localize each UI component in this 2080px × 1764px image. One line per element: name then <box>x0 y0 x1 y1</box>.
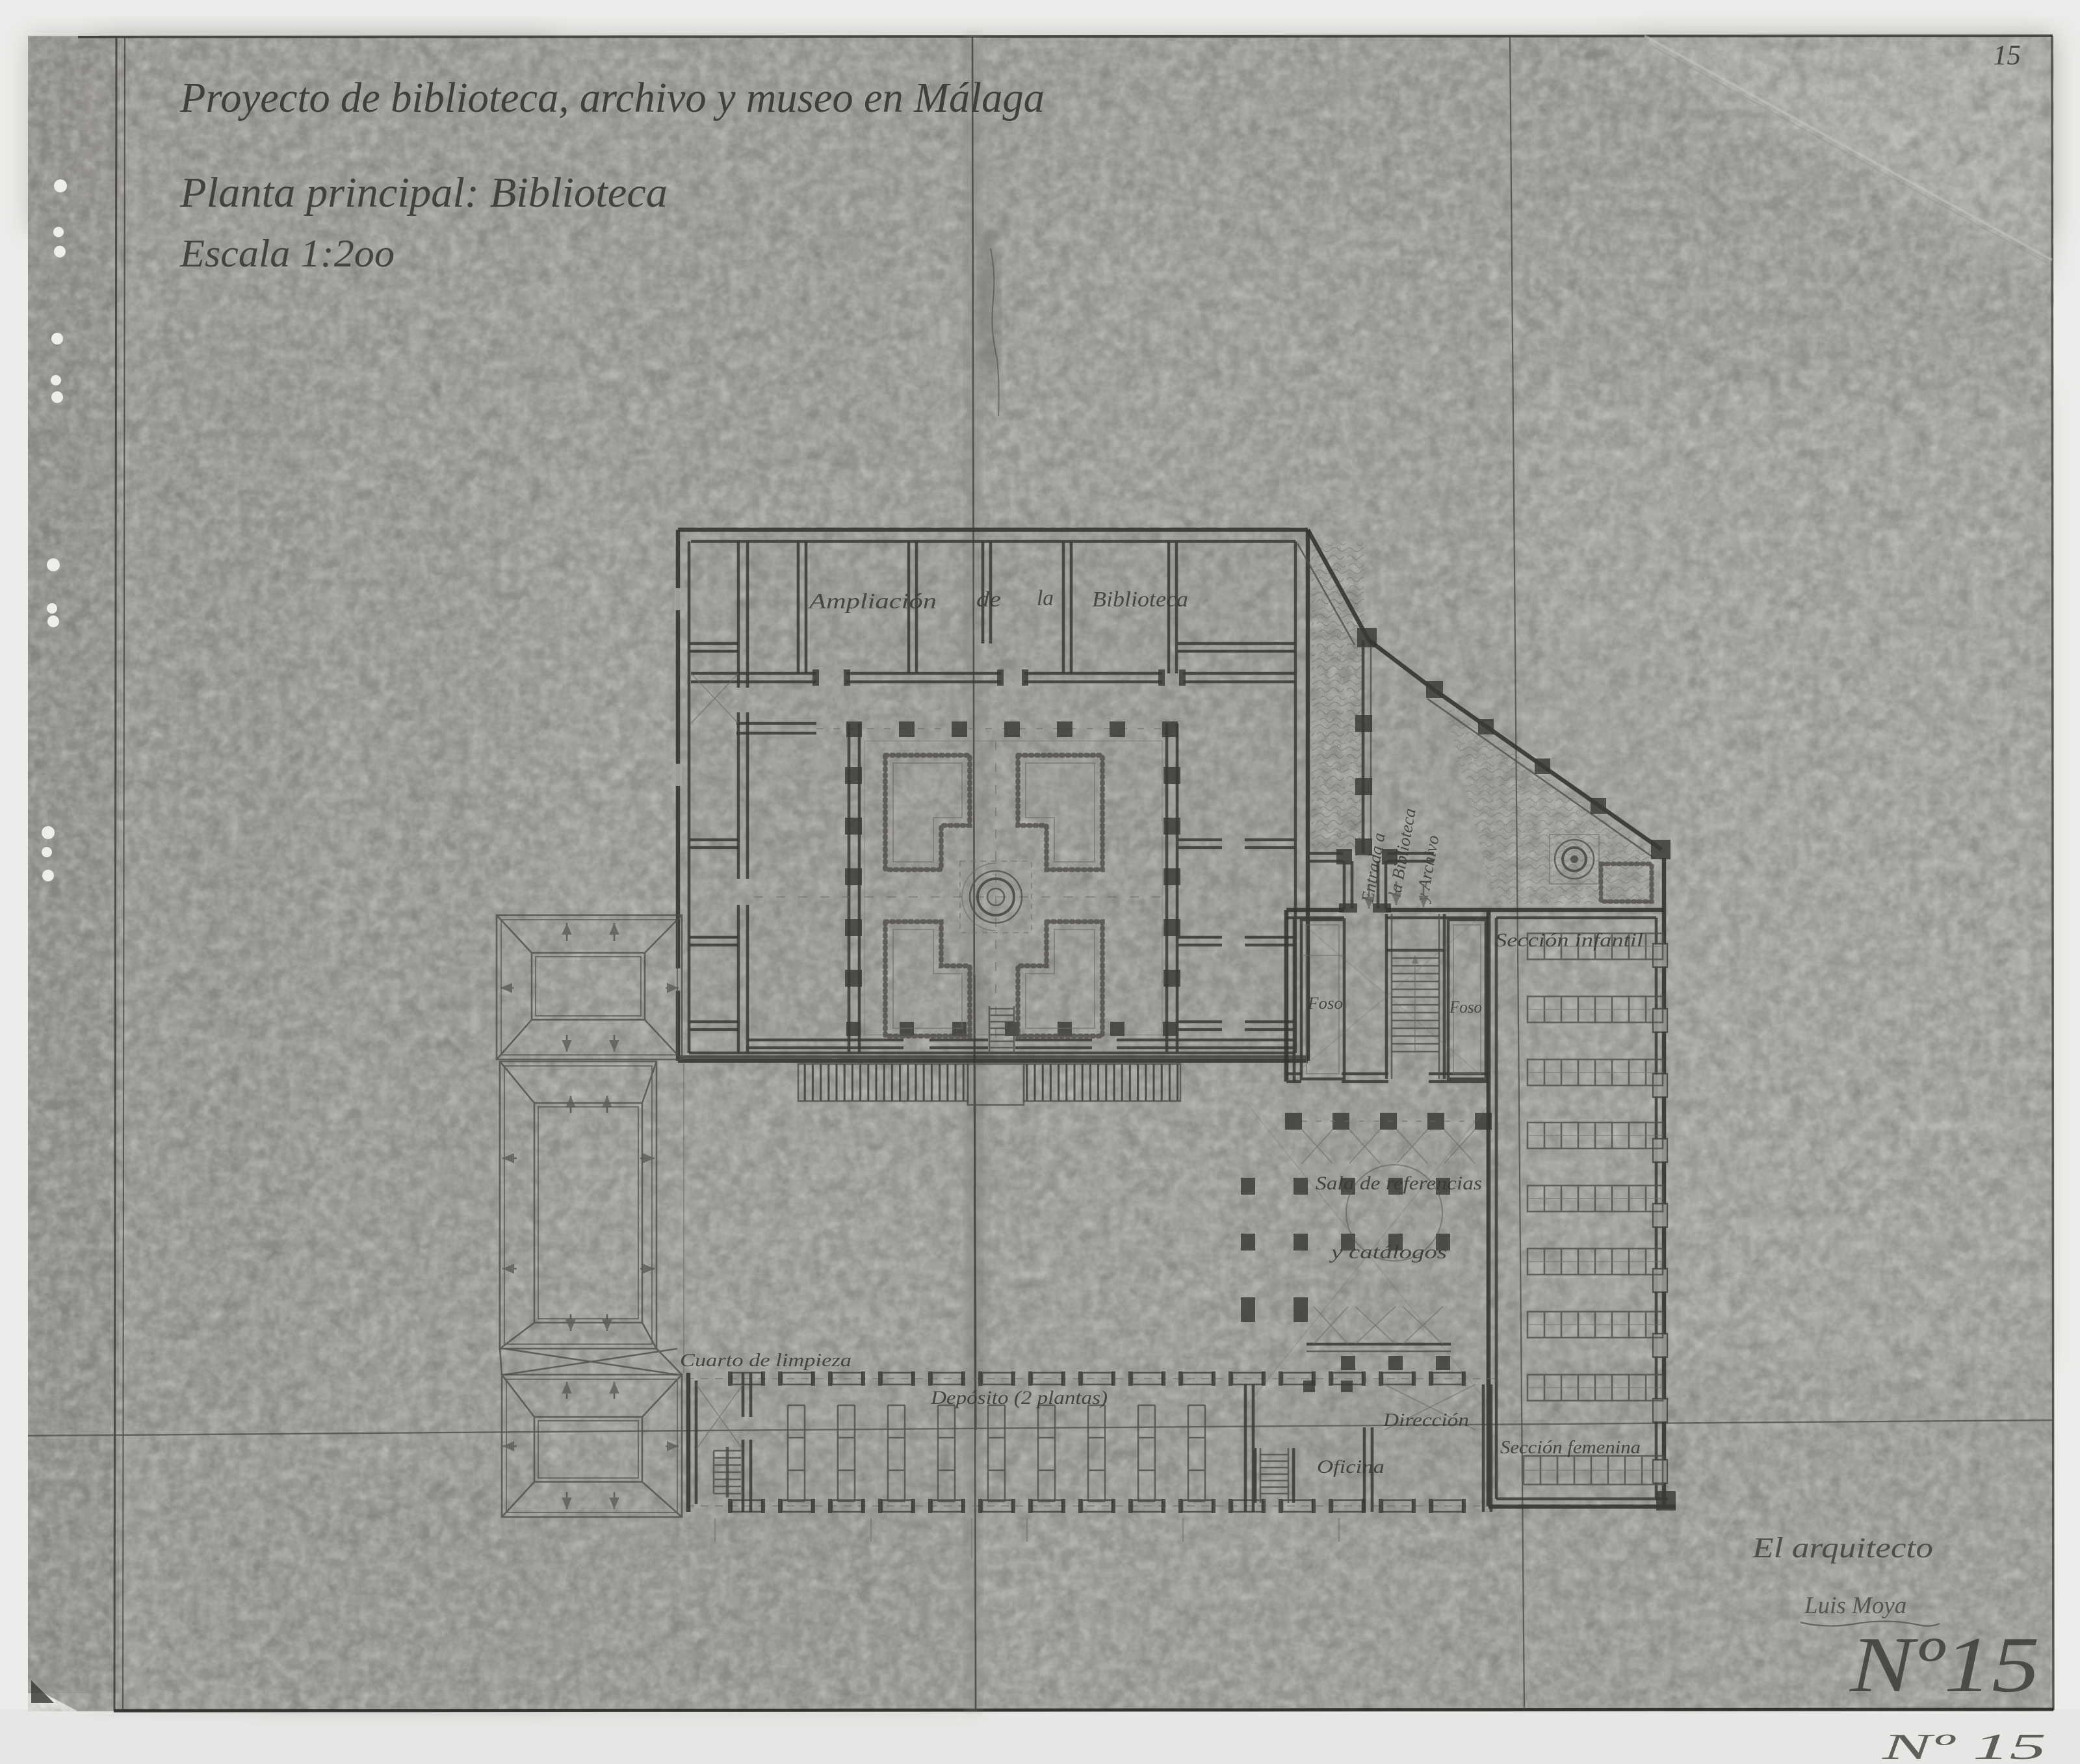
svg-text:Luis Moya: Luis Moya <box>1804 1592 1906 1619</box>
svg-text:Depósito (2 plantas): Depósito (2 plantas) <box>930 1387 1108 1408</box>
svg-text:Escala 1:2oo: Escala 1:2oo <box>179 232 395 275</box>
svg-text:Ampliación: Ampliación <box>807 590 937 614</box>
svg-text:Foso: Foso <box>1449 998 1482 1017</box>
svg-text:15: 15 <box>1993 40 2021 71</box>
svg-text:Planta principal: Biblioteca: Planta principal: Biblioteca <box>179 169 668 216</box>
svg-text:Sección infantil: Sección infantil <box>1495 929 1643 951</box>
svg-text:y catálogos: y catálogos <box>1329 1241 1447 1263</box>
svg-text:Proyecto de biblioteca, archiv: Proyecto de biblioteca, archivo y museo … <box>179 74 1045 122</box>
svg-text:Foso: Foso <box>1307 994 1343 1013</box>
svg-text:Sala de referencias: Sala de referencias <box>1316 1173 1482 1194</box>
svg-text:El arquitecto: El arquitecto <box>1752 1532 1933 1564</box>
svg-text:Dirección: Dirección <box>1383 1410 1469 1431</box>
svg-text:Sección femenina: Sección femenina <box>1500 1438 1641 1458</box>
svg-text:Biblioteca: Biblioteca <box>1092 588 1188 612</box>
svg-text:Cuarto de limpieza: Cuarto de limpieza <box>680 1351 851 1371</box>
svg-text:Oficina: Oficina <box>1317 1457 1384 1477</box>
svg-text:de: de <box>976 588 1001 612</box>
svg-text:Nº 15: Nº 15 <box>1881 1727 2046 1764</box>
svg-text:la: la <box>1037 586 1054 610</box>
svg-text:Nº15: Nº15 <box>1849 1621 2040 1709</box>
